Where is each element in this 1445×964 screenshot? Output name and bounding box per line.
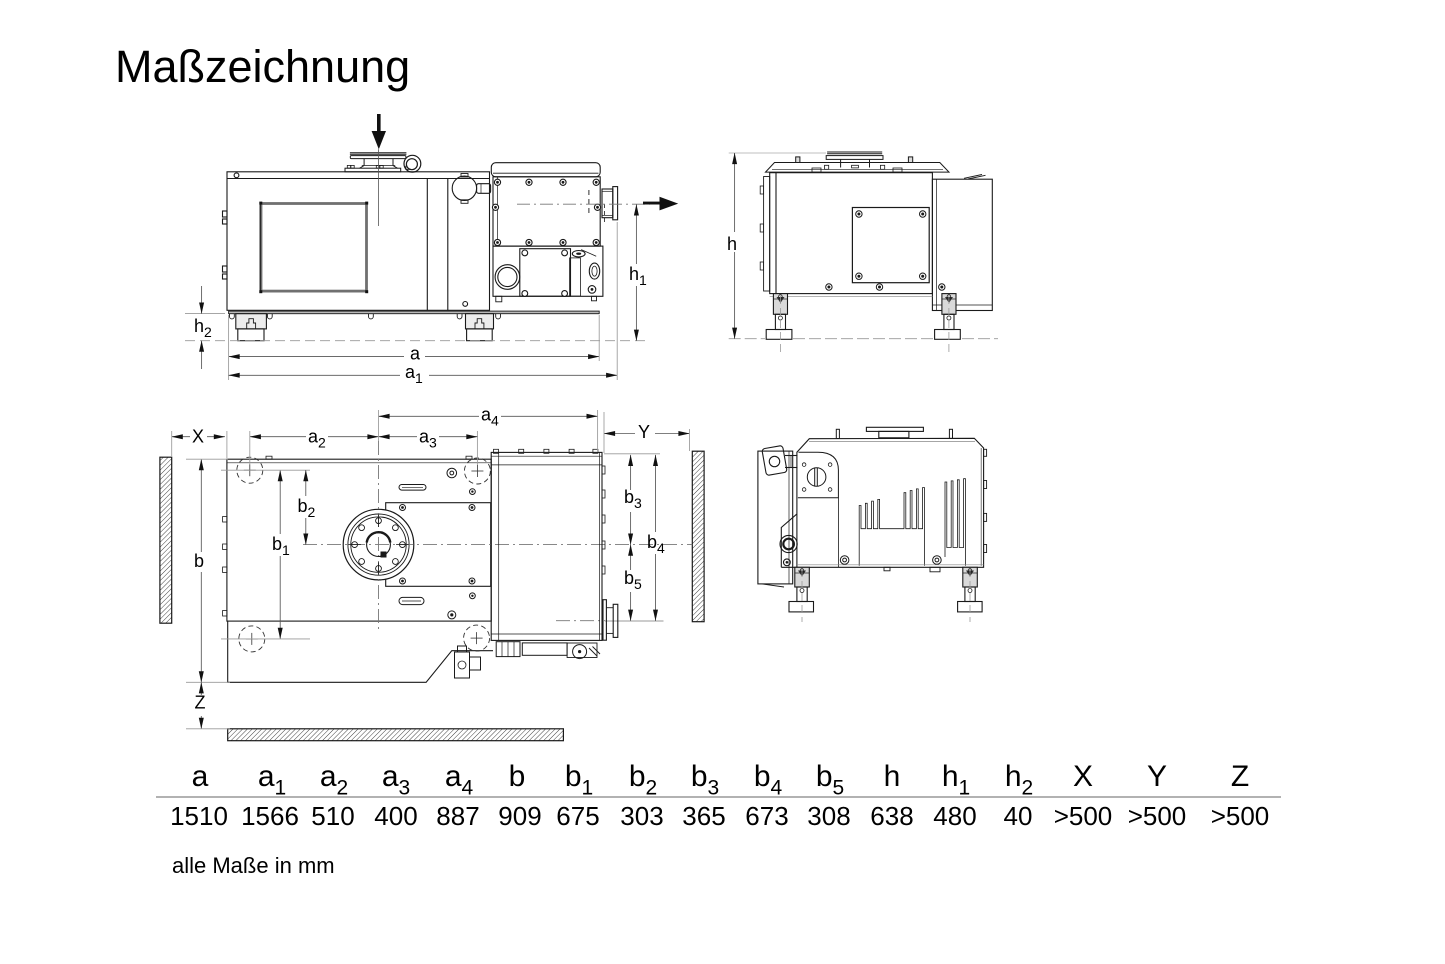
svg-text:b2: b2 bbox=[298, 496, 316, 520]
svg-text:a1: a1 bbox=[405, 362, 423, 386]
svg-text:b4: b4 bbox=[647, 532, 665, 556]
svg-text:b: b bbox=[509, 760, 526, 793]
svg-text:b5: b5 bbox=[816, 760, 844, 800]
svg-text:h1: h1 bbox=[629, 264, 647, 288]
svg-text:>500: >500 bbox=[1054, 801, 1113, 831]
svg-text:b: b bbox=[194, 551, 204, 571]
svg-text:b1: b1 bbox=[272, 534, 290, 558]
svg-text:b3: b3 bbox=[624, 487, 642, 511]
svg-text:h: h bbox=[884, 760, 901, 793]
svg-text:510: 510 bbox=[311, 801, 354, 831]
svg-text:673: 673 bbox=[745, 801, 788, 831]
svg-text:a1: a1 bbox=[258, 760, 286, 800]
svg-text:40: 40 bbox=[1004, 801, 1033, 831]
svg-text:b2: b2 bbox=[629, 760, 657, 800]
svg-text:a2: a2 bbox=[308, 427, 326, 451]
svg-text:a3: a3 bbox=[419, 427, 437, 451]
svg-text:638: 638 bbox=[870, 801, 913, 831]
svg-text:b4: b4 bbox=[754, 760, 783, 800]
svg-text:b3: b3 bbox=[691, 760, 719, 800]
svg-text:Y: Y bbox=[1147, 760, 1167, 793]
svg-text:a: a bbox=[410, 344, 421, 364]
svg-text:303: 303 bbox=[620, 801, 663, 831]
svg-text:a4: a4 bbox=[445, 760, 474, 800]
svg-text:887: 887 bbox=[436, 801, 479, 831]
svg-text:a3: a3 bbox=[382, 760, 410, 800]
svg-text:400: 400 bbox=[374, 801, 417, 831]
svg-text:365: 365 bbox=[682, 801, 725, 831]
svg-text:Z: Z bbox=[1231, 760, 1249, 793]
svg-text:h2: h2 bbox=[1005, 760, 1033, 800]
svg-text:b1: b1 bbox=[565, 760, 593, 800]
svg-text:b5: b5 bbox=[624, 568, 642, 592]
svg-text:308: 308 bbox=[807, 801, 850, 831]
svg-text:X: X bbox=[1073, 760, 1093, 793]
svg-text:a: a bbox=[192, 760, 209, 793]
svg-text:Z: Z bbox=[195, 693, 206, 713]
svg-text:675: 675 bbox=[556, 801, 599, 831]
svg-text:h2: h2 bbox=[194, 316, 212, 340]
svg-text:Maßzeichnung: Maßzeichnung bbox=[115, 41, 410, 92]
svg-text:480: 480 bbox=[933, 801, 976, 831]
svg-text:909: 909 bbox=[498, 801, 541, 831]
svg-text:>500: >500 bbox=[1211, 801, 1270, 831]
svg-text:X: X bbox=[192, 427, 204, 447]
svg-text:>500: >500 bbox=[1128, 801, 1187, 831]
svg-text:a4: a4 bbox=[481, 405, 499, 429]
svg-text:h1: h1 bbox=[942, 760, 970, 800]
svg-text:h: h bbox=[727, 234, 737, 254]
svg-text:alle Maße in mm: alle Maße in mm bbox=[172, 853, 335, 878]
svg-text:1566: 1566 bbox=[241, 801, 299, 831]
svg-text:a2: a2 bbox=[320, 760, 348, 800]
svg-text:Y: Y bbox=[638, 422, 650, 442]
svg-text:1510: 1510 bbox=[170, 801, 228, 831]
